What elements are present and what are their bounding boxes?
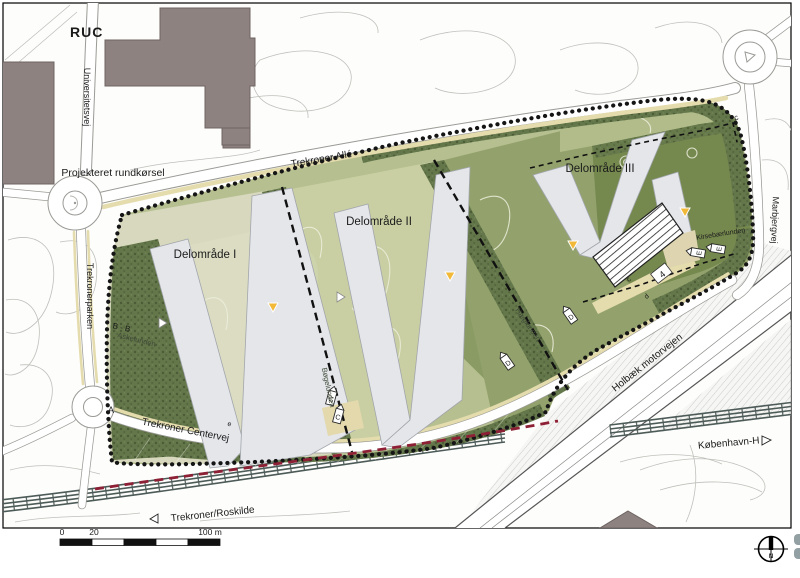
projected-roundabout xyxy=(48,176,102,230)
marbjergvej-label: Marbjergvej xyxy=(769,196,781,243)
projekteret-rundkorsel-label: Projekteret rundkørsel xyxy=(61,167,164,179)
trekronerparken-label: Trekronerparken xyxy=(85,263,95,329)
ruc-label: RUC xyxy=(70,24,103,40)
map-canvas: C C D D E E 4 RUC Universite xyxy=(0,0,800,578)
delomraade3-label: Delområde III xyxy=(565,163,634,175)
site-plan-map: C C D D E E 4 RUC Universite xyxy=(0,0,800,578)
scale-tick-20: 20 xyxy=(89,527,99,537)
delomraade1-label: Delområde I xyxy=(174,249,237,261)
delomraade2-label: Delområde II xyxy=(346,216,412,228)
ruc-building-west xyxy=(0,62,54,184)
scale-tick-100: 100 m xyxy=(198,527,222,537)
northeast-roundabout xyxy=(723,30,777,84)
north-letter: N xyxy=(769,554,773,560)
marker-a: A xyxy=(108,405,114,415)
ruc-building-small xyxy=(222,128,250,145)
scale-tick-0: 0 xyxy=(60,527,65,537)
universitetsvej-label: Universitetsvej xyxy=(82,68,92,127)
